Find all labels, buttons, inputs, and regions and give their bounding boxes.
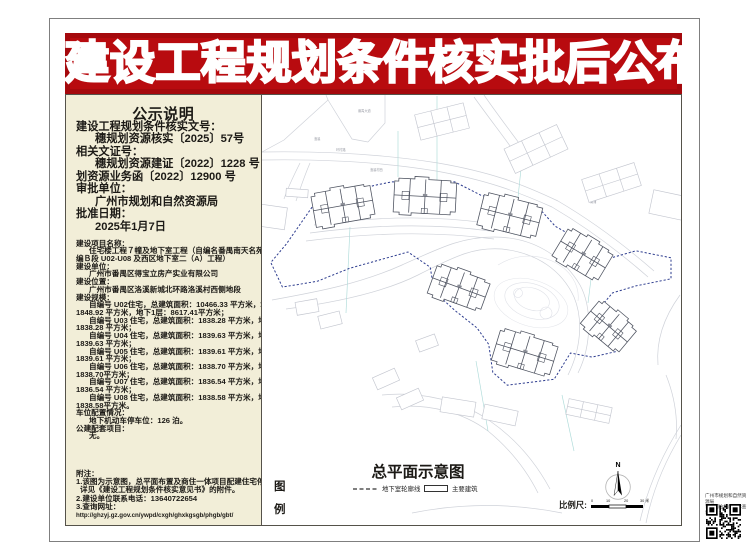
svg-text:洛溪村西: 洛溪村西 (370, 167, 383, 172)
svg-text:环村路: 环村路 (336, 147, 346, 152)
svg-text:10: 10 (606, 499, 610, 503)
svg-text:20: 20 (624, 499, 628, 503)
svg-text:30 米: 30 米 (640, 498, 649, 503)
svg-text:洛溪: 洛溪 (314, 136, 321, 141)
svg-text:番禺大道: 番禺大道 (358, 108, 372, 113)
svg-text:0: 0 (591, 499, 593, 503)
svg-text:N: N (615, 462, 620, 469)
